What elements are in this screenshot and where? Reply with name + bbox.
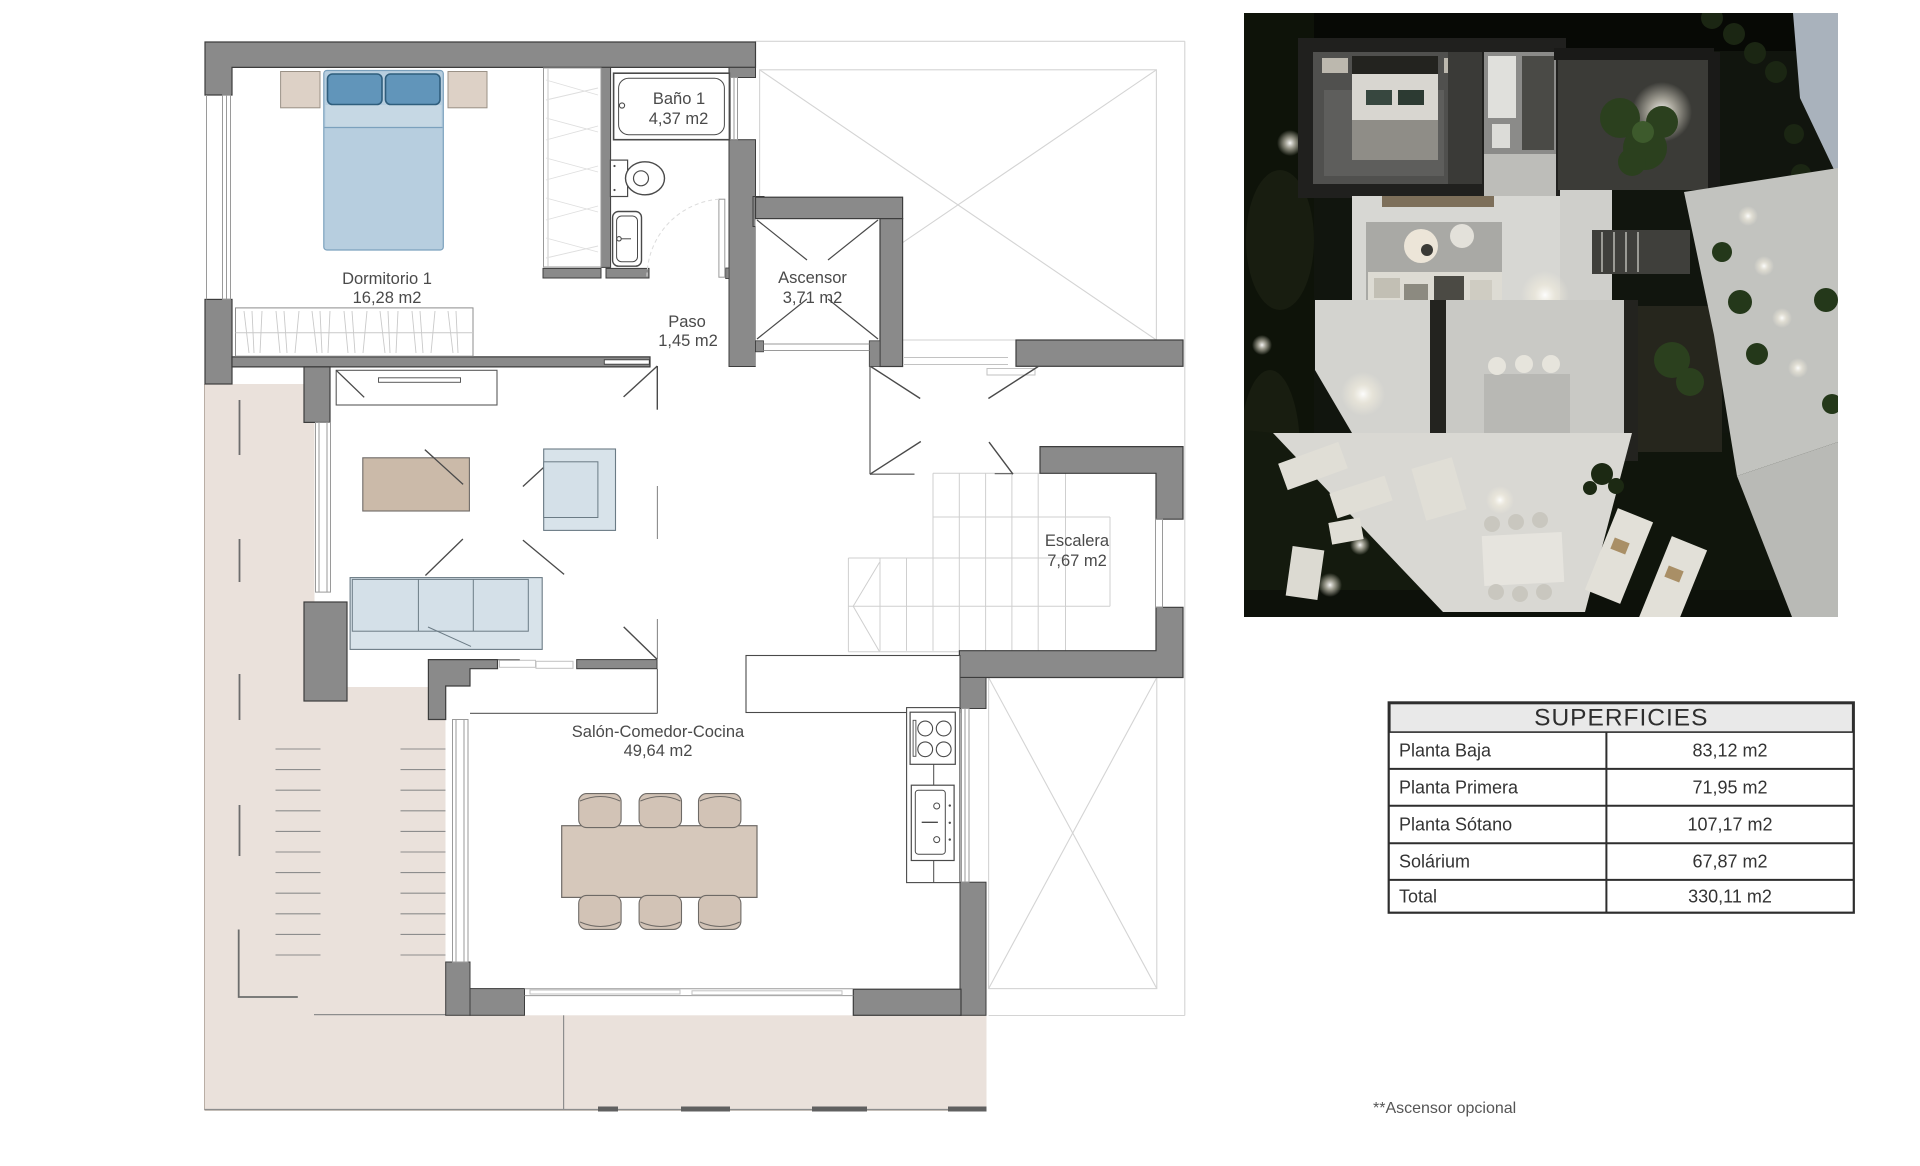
- svg-text:1,45 m2: 1,45 m2: [658, 332, 718, 350]
- svg-text:71,95 m2: 71,95 m2: [1692, 778, 1767, 798]
- svg-text:Baño 1: Baño 1: [653, 90, 705, 108]
- svg-text:Salón-Comedor-Cocina: Salón-Comedor-Cocina: [572, 723, 745, 741]
- svg-text:Escalera: Escalera: [1045, 532, 1110, 550]
- svg-text:7,67 m2: 7,67 m2: [1047, 552, 1107, 570]
- svg-text:Planta Sótano: Planta Sótano: [1399, 815, 1512, 835]
- svg-text:67,87 m2: 67,87 m2: [1692, 852, 1767, 872]
- svg-text:83,12 m2: 83,12 m2: [1692, 741, 1767, 761]
- svg-text:Ascensor: Ascensor: [778, 269, 847, 287]
- svg-text:Solárium: Solárium: [1399, 852, 1470, 872]
- svg-text:Dormitorio 1: Dormitorio 1: [342, 270, 432, 288]
- svg-text:107,17 m2: 107,17 m2: [1687, 815, 1772, 835]
- svg-text:330,11 m2: 330,11 m2: [1688, 887, 1772, 907]
- svg-text:3,71 m2: 3,71 m2: [783, 289, 843, 307]
- svg-text:16,28 m2: 16,28 m2: [353, 289, 422, 307]
- svg-text:Total: Total: [1399, 887, 1437, 907]
- svg-text:49,64 m2: 49,64 m2: [624, 742, 693, 760]
- svg-text:Paso: Paso: [668, 313, 706, 331]
- svg-text:Planta Baja: Planta Baja: [1399, 741, 1492, 761]
- svg-text:SUPERFICIES: SUPERFICIES: [1534, 705, 1708, 732]
- svg-text:4,37 m2: 4,37 m2: [649, 110, 709, 128]
- svg-text:**Ascensor opcional: **Ascensor opcional: [1373, 1100, 1516, 1117]
- svg-text:Planta Primera: Planta Primera: [1399, 778, 1519, 798]
